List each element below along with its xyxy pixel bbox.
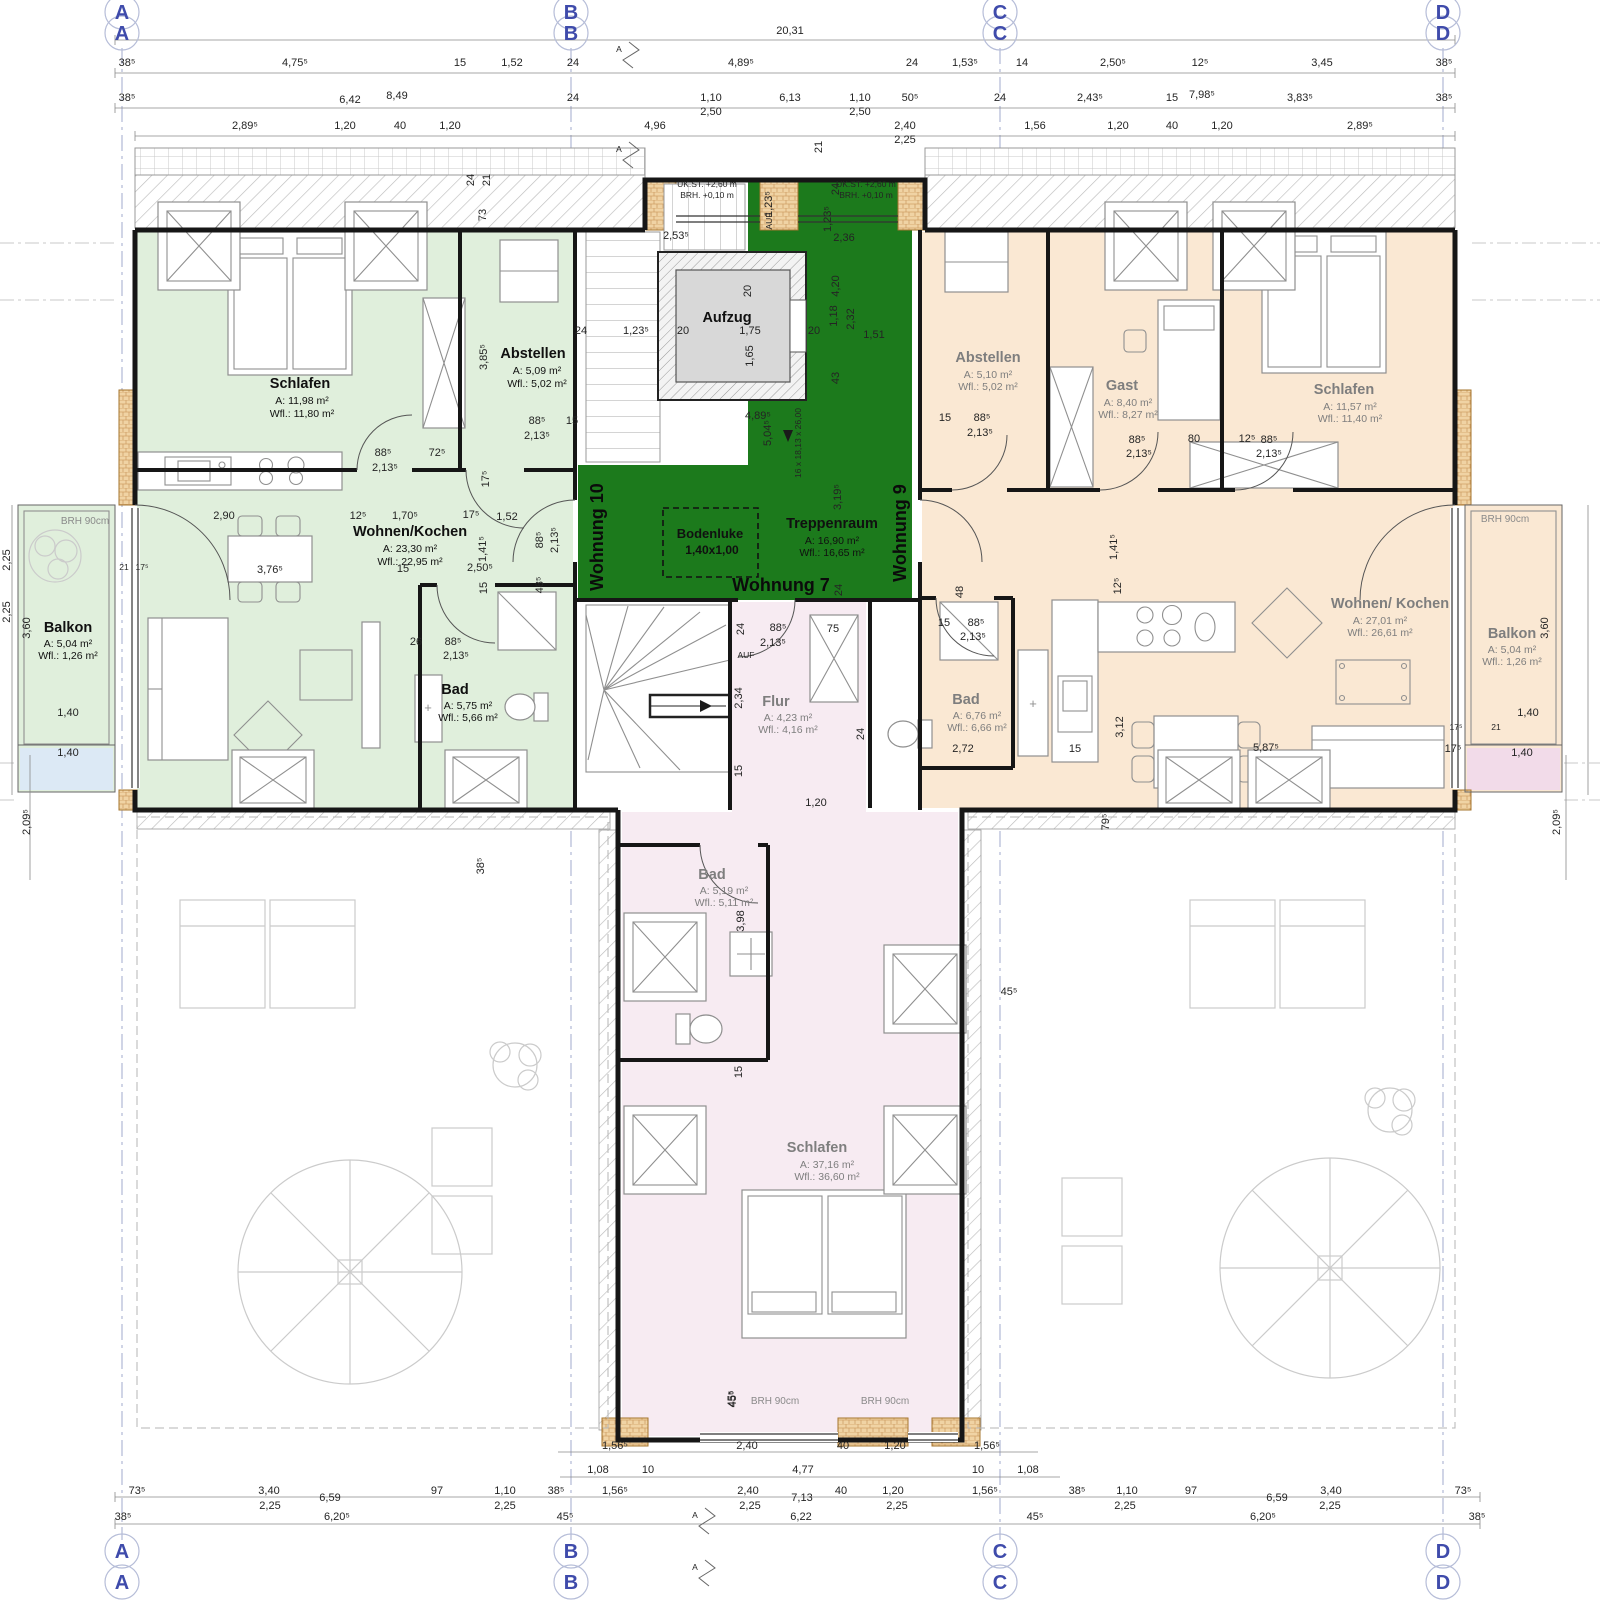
dim: 6,59 <box>319 1492 340 1504</box>
dim: 45⁵ <box>727 1391 739 1408</box>
dim: 21 <box>1491 722 1501 732</box>
dim: 1,70⁵ <box>392 510 418 522</box>
dim: 75 <box>827 623 839 635</box>
dim: 2,25 <box>886 1500 907 1512</box>
dim: 17⁵ <box>463 509 480 521</box>
dim: 1,20 <box>805 797 826 809</box>
room-area: A: 37,16 m² <box>800 1159 855 1171</box>
section-label: A <box>692 1562 698 1572</box>
dim: 1,20 <box>884 1440 905 1452</box>
dim: 4,89⁵ <box>728 57 754 69</box>
room-name: Aufzug <box>702 310 751 326</box>
dim: 40 <box>837 1440 849 1452</box>
dim: 24 <box>994 92 1006 104</box>
stair-steps-annotation: 16 x 18,13 x 26,00 <box>793 408 803 478</box>
room-area: A: 5,04 m² <box>44 638 93 650</box>
dim: 24 <box>575 325 587 337</box>
dim: 24 <box>567 92 579 104</box>
dim: 73⁵ <box>1455 1485 1472 1497</box>
dim: 48 <box>954 586 966 598</box>
dim: 20 <box>742 285 754 297</box>
dim: 38⁵ <box>119 92 136 104</box>
grid-letter: B <box>564 1572 578 1594</box>
dim: 21 <box>813 141 825 153</box>
dim: 1,08 <box>1017 1464 1038 1476</box>
room-area: A: 23,30 m² <box>383 543 438 555</box>
room-name: Flur <box>762 694 790 710</box>
dim: 17⁵ <box>1445 743 1462 755</box>
dim: 15 <box>1069 743 1081 755</box>
dim: 8,49 <box>386 90 407 102</box>
dim: 21 <box>119 562 129 572</box>
dim: 1,52 <box>496 511 517 523</box>
dim: 38⁵ <box>1436 92 1453 104</box>
dim: 72⁵ <box>429 447 446 459</box>
dim: 6,20⁵ <box>324 1511 350 1523</box>
dim: 17⁵ <box>136 562 149 572</box>
dim: 2,40 <box>894 120 915 132</box>
grid-letter: A <box>115 2 129 24</box>
dim: 1,65 <box>744 345 756 366</box>
dim: 24 <box>906 57 918 69</box>
dim: 2,50⁵ <box>467 562 493 574</box>
window-annotation: UK.ST. +2,60 m <box>836 179 896 189</box>
dim: 38⁵ <box>1436 57 1453 69</box>
dim: 2,40 <box>737 1485 758 1497</box>
stair-up-label: AUF <box>764 213 774 230</box>
big-bed <box>742 1190 906 1338</box>
room-area: A: 5,09 m² <box>513 365 562 377</box>
dim: 2,89⁵ <box>1347 120 1373 132</box>
room-name: Bad <box>952 692 979 708</box>
hatch-label: Bodenluke <box>677 526 743 541</box>
dim: 4,77 <box>792 1464 813 1476</box>
dim: 3,19⁵ <box>832 484 844 510</box>
dim: 1,56⁵ <box>972 1485 998 1497</box>
dim: 24 <box>567 57 579 69</box>
room-area: Wfl.: 36,60 m² <box>794 1171 860 1183</box>
grid-letter: B <box>564 2 578 24</box>
dim: 6,59 <box>1266 1492 1287 1504</box>
dim: 1,18 <box>828 305 840 326</box>
room-name: Treppenraum <box>786 516 878 532</box>
dim: 6,22 <box>790 1511 811 1523</box>
dim: 88⁵ <box>968 617 985 629</box>
dim: 38⁵ <box>1469 1511 1486 1523</box>
dim: 1,08 <box>587 1464 608 1476</box>
dim: 20 <box>808 325 820 337</box>
dim: 2,13⁵ <box>760 637 786 649</box>
section-label: A <box>616 44 622 54</box>
dim: 38⁵ <box>115 1511 132 1523</box>
room-area: Wfl.: 22,95 m² <box>377 556 443 568</box>
dim: 1,20 <box>1211 120 1232 132</box>
apartment-label: Wohnung 10 <box>587 483 607 591</box>
room-area: Wfl.: 1,26 m² <box>38 650 98 662</box>
dim: 48⁵ <box>534 577 546 594</box>
dim: 1,56⁵ <box>602 1485 628 1497</box>
dim: 1,53⁵ <box>952 57 978 69</box>
dim: 3,45 <box>1311 57 1332 69</box>
dim: 1,20 <box>334 120 355 132</box>
dim: 1,10 <box>494 1485 515 1497</box>
room-area: Wfl.: 16,65 m² <box>799 547 865 559</box>
room-name: Schlafen <box>270 376 330 392</box>
dim: 40 <box>394 120 406 132</box>
dim: 2,53⁵ <box>663 230 689 242</box>
room-area: A: 6,76 m² <box>953 710 1002 722</box>
grid-letter: A <box>115 23 129 45</box>
dim: 2,13⁵ <box>549 527 561 553</box>
grid-letter: A <box>115 1541 129 1563</box>
dim: 3,85⁵ <box>478 344 490 370</box>
dim: 1,75 <box>739 325 760 337</box>
dim: 2,13⁵ <box>443 650 469 662</box>
grid-letter: C <box>993 2 1007 24</box>
dim: 2,13⁵ <box>524 430 550 442</box>
dim: 1,41⁵ <box>477 536 489 562</box>
dim: 3,40 <box>258 1485 279 1497</box>
grid-letter: D <box>1436 2 1450 24</box>
dim: 1,23⁵ <box>822 206 834 232</box>
grid-letter: C <box>993 23 1007 45</box>
dim: 2,25 <box>1 601 13 622</box>
room-name: Gast <box>1106 378 1138 394</box>
room-area: A: 5,75 m² <box>444 700 493 712</box>
dim: 2,50 <box>700 106 721 118</box>
dim: 1,40 <box>57 747 78 759</box>
room-area: A: 8,40 m² <box>1104 397 1153 409</box>
dim: 2,09⁵ <box>1551 809 1563 835</box>
room-area: A: 27,01 m² <box>1353 615 1408 627</box>
dim: 2,36 <box>833 232 854 244</box>
winder-stair <box>586 605 730 772</box>
floor-plan: + + <box>0 0 1600 1600</box>
window-sill-label: BRH 90cm <box>1481 514 1529 525</box>
dim: 24 <box>855 728 867 740</box>
dim: 2,25 <box>494 1500 515 1512</box>
dim: 2,50 <box>849 106 870 118</box>
dim: 38⁵ <box>119 57 136 69</box>
dim: 3,98 <box>735 910 747 931</box>
dim: 2,89⁵ <box>232 120 258 132</box>
grid-letter: B <box>564 1541 578 1563</box>
dim: 3,12 <box>1114 716 1126 737</box>
dim: 7,98⁵ <box>1189 89 1215 101</box>
dim: 88⁵ <box>1261 434 1278 446</box>
room-area: Wfl.: 11,40 m² <box>1318 413 1383 425</box>
room-area: Wfl.: 5,02 m² <box>958 381 1018 393</box>
section-label: A <box>616 144 622 154</box>
room-area: A: 4,23 m² <box>764 712 813 724</box>
dim: 1,20 <box>1107 120 1128 132</box>
svg-text:+: + <box>1029 696 1037 711</box>
dim: 79⁵ <box>1100 814 1112 831</box>
dim: 4,75⁵ <box>282 57 308 69</box>
dim: 15 <box>733 765 745 777</box>
room-name: Bad <box>441 682 468 698</box>
dim: 88⁵ <box>770 622 787 634</box>
dim: 38⁵ <box>1069 1485 1086 1497</box>
dim: 1,20 <box>882 1485 903 1497</box>
room-area: Wfl.: 6,66 m² <box>947 722 1007 734</box>
window-sill-label: BRH 90cm <box>861 1396 909 1407</box>
dim: 50⁵ <box>902 92 919 104</box>
dim: 2,13⁵ <box>960 631 986 643</box>
dim: 2,25 <box>894 134 915 146</box>
dim: 15 <box>939 412 951 424</box>
dim: 88⁵ <box>375 447 392 459</box>
room-name: Balkon <box>1488 626 1536 642</box>
dim: 3,60 <box>1539 617 1551 638</box>
dim: 88⁵ <box>445 636 462 648</box>
dim: 1,40 <box>1517 707 1538 719</box>
dim: 6,42 <box>339 94 360 106</box>
room-name: Schlafen <box>1314 382 1374 398</box>
dim: 15 <box>478 582 490 594</box>
room-area: A: 5,04 m² <box>1488 644 1537 656</box>
room-name: Wohnen/ Kochen <box>1331 596 1449 612</box>
dim: 1,56⁵ <box>602 1440 628 1452</box>
dim: 45⁵ <box>557 1511 574 1523</box>
dim: 2,25 <box>259 1500 280 1512</box>
dim: 1,51 <box>863 329 884 341</box>
grid-letter: B <box>564 23 578 45</box>
dim: 15 <box>938 617 950 629</box>
room-area: Wfl.: 5,66 m² <box>438 712 498 724</box>
dim: 15 <box>566 415 578 427</box>
room-name: Schlafen <box>787 1140 847 1156</box>
grid-letter: D <box>1436 1572 1450 1594</box>
dim: 6,20⁵ <box>1250 1511 1276 1523</box>
dim: 1,23⁵ <box>623 325 649 337</box>
apartment-label: Wohnung 9 <box>890 484 910 582</box>
dim: 2,50⁵ <box>1100 57 1126 69</box>
dim: 17⁵ <box>1450 722 1463 732</box>
dim: 21 <box>481 174 493 186</box>
room-area: Wfl.: 5,11 m² <box>695 897 754 909</box>
apartment-label: Wohnung 7 <box>732 575 830 595</box>
dim: 2,25 <box>739 1500 760 1512</box>
dim: 26 <box>410 636 422 648</box>
grid-letter: D <box>1436 23 1450 45</box>
room-area: A: 11,98 m² <box>275 395 329 407</box>
dim: 24 <box>735 623 747 635</box>
dim: 40 <box>1166 120 1178 132</box>
room-area: Wfl.: 1,26 m² <box>1482 656 1542 668</box>
dim: 2,25 <box>1319 1500 1340 1512</box>
dim: 2,32 <box>845 308 857 329</box>
dim: 2,25 <box>1114 1500 1135 1512</box>
dim: 12⁵ <box>1192 57 1209 69</box>
stair-up-label: AUF <box>738 650 755 660</box>
dim: 15 <box>454 57 466 69</box>
grid-letter: A <box>115 1572 129 1594</box>
dim: 1,52 <box>501 57 522 69</box>
hatch-size: 1,40x1,00 <box>685 543 739 557</box>
dim: 2,90 <box>213 510 234 522</box>
dim: 12⁵ <box>350 510 367 522</box>
dim: 3,83⁵ <box>1287 92 1313 104</box>
svg-text:+: + <box>424 700 432 715</box>
room-area: A: 16,90 m² <box>805 535 860 547</box>
dim: 45⁵ <box>1001 986 1018 998</box>
dim: 7,13 <box>791 1492 812 1504</box>
dim: 15 <box>733 1066 745 1078</box>
grid-letter: C <box>993 1541 1007 1563</box>
dim: 2,40 <box>736 1440 757 1452</box>
dim: 2,43⁵ <box>1077 92 1103 104</box>
grid-letter: D <box>1436 1541 1450 1563</box>
dim: 88⁵ <box>974 412 991 424</box>
window-annotation: BRH. +0,10 m <box>680 190 734 200</box>
dim: 15 <box>1166 92 1178 104</box>
window-annotation: BRH. +0,10 m <box>839 190 893 200</box>
room-area: Wfl.: 8,27 m² <box>1098 409 1158 421</box>
dim: 1,40 <box>1511 747 1532 759</box>
room-area: Wfl.: 26,61 m² <box>1347 627 1413 639</box>
room-area: Wfl.: 5,02 m² <box>507 378 567 390</box>
section-label: A <box>692 1510 698 1520</box>
room-area: Wfl.: 11,80 m² <box>270 408 335 420</box>
dim: 88⁵ <box>534 532 546 549</box>
dim: 45⁵ <box>1027 1511 1044 1523</box>
dim: 88⁵ <box>529 415 546 427</box>
dim: 3,60 <box>21 617 33 638</box>
dim: 1,20 <box>439 120 460 132</box>
dim: 10 <box>642 1464 654 1476</box>
dim: 2,13⁵ <box>1126 448 1152 460</box>
dim: 38⁵ <box>548 1485 565 1497</box>
dim: 1,56 <box>1024 120 1045 132</box>
room-area: A: 5,10 m² <box>964 369 1013 381</box>
room-area: A: 11,57 m² <box>1323 401 1377 413</box>
dim: 5,04⁵ <box>762 420 774 446</box>
dim: 73 <box>477 209 489 221</box>
window-sill-label: BRH 90cm <box>751 1396 799 1407</box>
dim: 2,34 <box>733 687 745 708</box>
dim: 14 <box>1016 57 1028 69</box>
dim: 38⁵ <box>475 858 487 875</box>
room-name: Abstellen <box>955 350 1020 366</box>
dim: 1,40 <box>57 707 78 719</box>
dim: 3,40 <box>1320 1485 1341 1497</box>
dim: 73⁵ <box>129 1485 146 1497</box>
dim: 12⁵ <box>1239 433 1256 445</box>
dim: 1,10 <box>700 92 721 104</box>
dim: 97 <box>1185 1485 1197 1497</box>
dim: 2,25 <box>1 549 13 570</box>
dim: 1,56⁵ <box>974 1440 1000 1452</box>
grid-letter: C <box>993 1572 1007 1594</box>
dim: 12⁵ <box>1112 578 1124 595</box>
room-name: Abstellen <box>500 346 565 362</box>
dim: 1,41⁵ <box>1108 534 1120 560</box>
dim: 40 <box>835 1485 847 1497</box>
dim: 80 <box>1188 433 1200 445</box>
room-area: Wfl.: 4,16 m² <box>758 724 818 736</box>
dim: 24 <box>833 584 845 596</box>
room-name: Wohnen/Kochen <box>353 524 467 540</box>
dim: 2,13⁵ <box>372 462 398 474</box>
dim: 4,20 <box>830 275 842 296</box>
dim: 2,13⁵ <box>1256 448 1282 460</box>
room-area: A: 5,19 m² <box>700 885 749 897</box>
dim: 20 <box>677 325 689 337</box>
dim: 88⁵ <box>1129 434 1146 446</box>
dim: 24 <box>465 174 477 186</box>
dim: 2,13⁵ <box>967 427 993 439</box>
window-sill-label: BRH 90cm <box>61 516 109 527</box>
dim: 10 <box>972 1464 984 1476</box>
dim: 17⁵ <box>480 471 492 488</box>
window-annotation: UK.ST. +2,60 m <box>677 179 737 189</box>
dim: 1,10 <box>1116 1485 1137 1497</box>
dim: 4,96 <box>644 120 665 132</box>
dim: 43 <box>830 372 842 384</box>
dim: 20,31 <box>776 25 804 37</box>
dim: 97 <box>431 1485 443 1497</box>
room-name: Bad <box>698 867 725 883</box>
dim: 2,09⁵ <box>21 809 33 835</box>
dim: 1,10 <box>849 92 870 104</box>
dim: 3,76⁵ <box>257 564 283 576</box>
dim: 2,72 <box>952 743 973 755</box>
dim: 5,87⁵ <box>1253 742 1279 754</box>
room-name: Balkon <box>44 620 92 636</box>
dim: 6,13 <box>779 92 800 104</box>
